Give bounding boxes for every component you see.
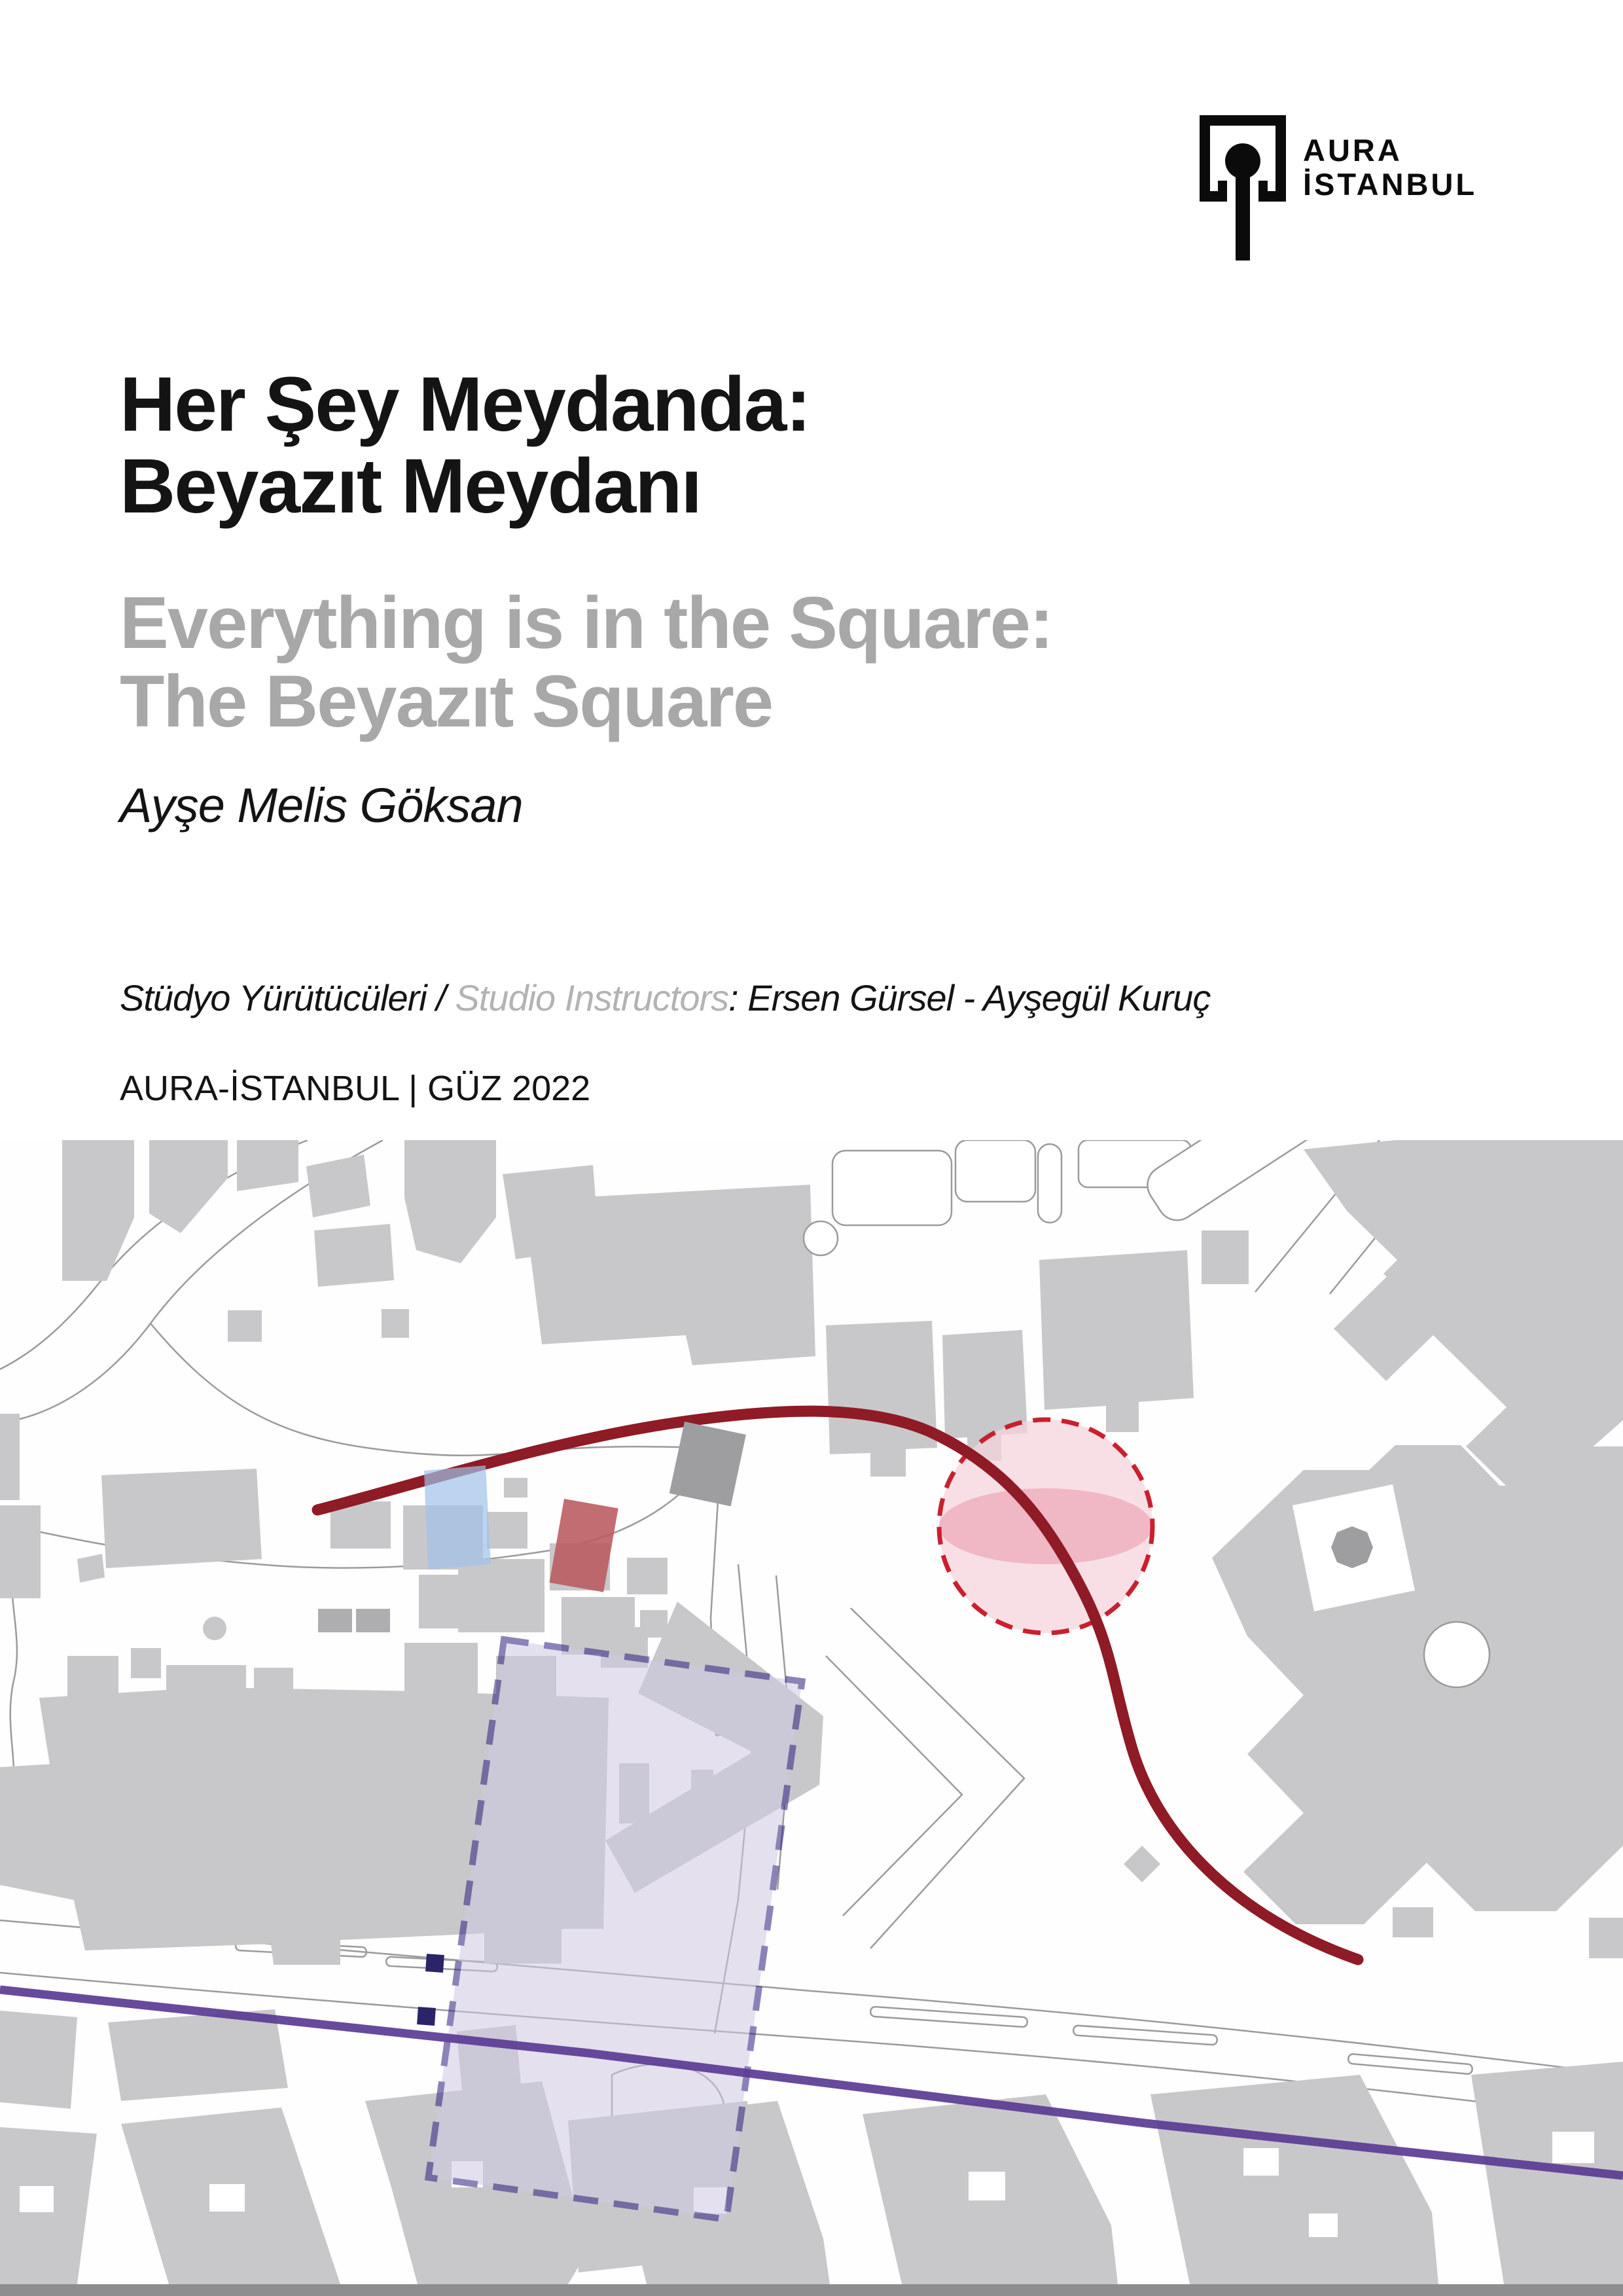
aura-wordmark-line2: İSTANBUL: [1303, 168, 1477, 202]
buildings-layer: [0, 1140, 1623, 2284]
stop-boxes: [318, 1609, 390, 1632]
instructors-names: : Ersen Gürsel - Ayşegül Kuruç: [728, 977, 1210, 1018]
title-turkish: Her Şey Meydanda: Beyazıt Meydanı: [120, 364, 810, 528]
beyazit-square-map: [0, 1140, 1623, 2296]
aura-wordmark: AURA İSTANBUL: [1303, 134, 1477, 201]
poster-page: AURA İSTANBUL Her Şey Meydanda: Beyazıt …: [0, 0, 1623, 2296]
title-english: Everything is in the Square: The Beyazıt…: [120, 584, 1052, 741]
landmark-navy-square-1: [425, 1954, 444, 1973]
author-name: Ayşe Melis Göksan: [120, 778, 523, 833]
edition-line: AURA-İSTANBUL | GÜZ 2022: [120, 1068, 590, 1109]
outlined-buildings: [804, 1140, 1353, 1255]
title-turkish-line2: Beyazıt Meydanı: [120, 446, 810, 528]
landmark-navy-square-2: [417, 2007, 436, 2026]
title-turkish-line1: Her Şey Meydanda:: [120, 364, 810, 446]
title-english-line2: The Beyazıt Square: [120, 662, 1052, 741]
aura-pin-icon: [1200, 115, 1286, 260]
map-bottom-strip: [0, 2284, 1623, 2296]
title-english-line1: Everything is in the Square:: [120, 584, 1052, 662]
instructors-label-tr: Stüdyo Yürütücüleri /: [120, 977, 455, 1018]
aura-wordmark-line1: AURA: [1303, 134, 1477, 168]
instructors-label-en: Studio Instructors: [455, 977, 728, 1018]
dark-gray-slab: [669, 1422, 746, 1507]
landmark-blue-square: [424, 1465, 491, 1570]
studio-instructors-line: Stüdyo Yürütücüleri / Studio Instructors…: [120, 977, 1210, 1019]
aura-istanbul-logo: AURA İSTANBUL: [1200, 115, 1477, 260]
